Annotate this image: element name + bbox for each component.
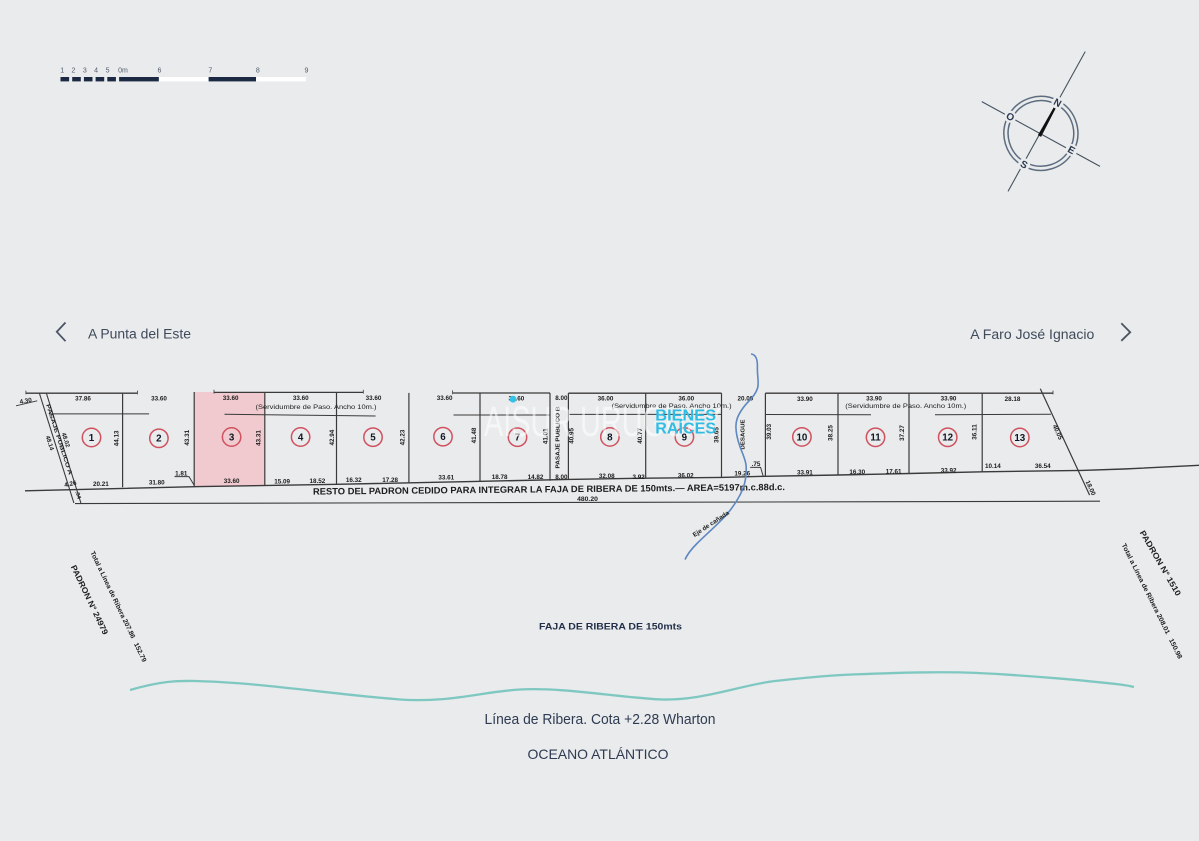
svg-text:32.08: 32.08: [599, 473, 615, 480]
svg-text:9: 9: [304, 68, 308, 75]
svg-text:DESAGUE: DESAGUE: [741, 419, 747, 449]
svg-text:41.48: 41.48: [471, 427, 478, 443]
svg-text:33.92: 33.92: [941, 468, 957, 475]
svg-text:11: 11: [870, 433, 881, 444]
svg-text:7: 7: [208, 68, 212, 75]
svg-text:6: 6: [440, 432, 446, 443]
svg-text:1: 1: [60, 68, 64, 75]
svg-text:0m: 0m: [118, 68, 128, 75]
svg-text:8: 8: [256, 68, 260, 75]
svg-text:2: 2: [72, 68, 76, 75]
svg-text:5: 5: [370, 433, 376, 444]
svg-text:2: 2: [156, 434, 162, 445]
svg-text:33.61: 33.61: [438, 474, 454, 481]
svg-text:4: 4: [298, 432, 304, 443]
svg-text:18.52: 18.52: [310, 478, 326, 485]
svg-text:36.02: 36.02: [678, 472, 694, 479]
svg-text:33.60: 33.60: [151, 395, 167, 402]
svg-text:1: 1: [89, 433, 95, 444]
svg-text:33.60: 33.60: [223, 395, 239, 402]
svg-text:19.26: 19.26: [734, 471, 750, 478]
svg-text:39.03: 39.03: [766, 423, 773, 439]
svg-text:.75: .75: [752, 461, 761, 468]
svg-text:16.30: 16.30: [849, 469, 865, 476]
svg-text:14.82: 14.82: [528, 474, 544, 481]
svg-text:33.90: 33.90: [866, 396, 882, 403]
svg-text:33.60: 33.60: [437, 395, 453, 402]
svg-text:36.11: 36.11: [972, 424, 979, 440]
svg-text:RAÍCES: RAÍCES: [655, 420, 716, 437]
svg-text:6: 6: [158, 68, 162, 75]
svg-text:(Servidumbre de Paso. Ancho 10: (Servidumbre de Paso. Ancho 10m.): [845, 404, 966, 410]
svg-text:3: 3: [229, 432, 235, 443]
svg-text:43.31: 43.31: [256, 430, 263, 446]
svg-text:42.94: 42.94: [329, 429, 336, 445]
svg-text:37.27: 37.27: [899, 425, 906, 441]
svg-text:FAJA DE RIBERA DE 150mts: FAJA DE RIBERA DE 150mts: [539, 622, 682, 633]
svg-text:10.14: 10.14: [985, 463, 1001, 470]
svg-text:20.21: 20.21: [93, 481, 109, 488]
svg-text:16.32: 16.32: [346, 477, 362, 484]
svg-text:36.54: 36.54: [1035, 463, 1051, 470]
svg-text:33.90: 33.90: [797, 396, 813, 403]
svg-text:3.92: 3.92: [632, 474, 645, 481]
svg-text:38.25: 38.25: [828, 425, 835, 441]
svg-text:28.18: 28.18: [1005, 396, 1021, 403]
svg-text:OCEANO ATLÁNTICO: OCEANO ATLÁNTICO: [528, 747, 669, 762]
svg-text:12: 12: [942, 433, 953, 444]
svg-text:37.86: 37.86: [75, 395, 91, 402]
svg-text:33.60: 33.60: [293, 395, 309, 402]
svg-text:10: 10: [796, 432, 807, 443]
svg-text:8.00: 8.00: [555, 474, 568, 481]
svg-text:5: 5: [106, 68, 110, 75]
svg-text:44.13: 44.13: [113, 430, 120, 446]
svg-text:(Servidumbre de Paso. Ancho 10: (Servidumbre de Paso. Ancho 10m.): [256, 405, 377, 411]
svg-text:31.80: 31.80: [149, 479, 165, 486]
svg-text:17.61: 17.61: [886, 469, 902, 476]
svg-text:18.78: 18.78: [492, 474, 508, 481]
svg-text:43.31: 43.31: [184, 429, 191, 445]
svg-text:17.28: 17.28: [382, 477, 398, 484]
svg-text:42.23: 42.23: [400, 429, 407, 445]
svg-text:33.91: 33.91: [797, 470, 813, 477]
svg-text:33.90: 33.90: [941, 396, 957, 403]
svg-text:4: 4: [94, 68, 98, 75]
svg-text:Línea de Ribera. Cota +2.28 Wh: Línea de Ribera. Cota +2.28 Wharton: [485, 712, 716, 728]
svg-text:15.09: 15.09: [274, 479, 290, 486]
svg-text:A Faro José Ignacio: A Faro José Ignacio: [970, 327, 1094, 343]
svg-text:480.20: 480.20: [577, 496, 598, 503]
svg-text:33.60: 33.60: [366, 395, 382, 402]
svg-text:A Punta del Este: A Punta del Este: [88, 327, 191, 343]
svg-text:13: 13: [1014, 433, 1025, 444]
svg-text:1.81: 1.81: [175, 470, 188, 477]
svg-text:3: 3: [83, 68, 87, 75]
svg-text:33.60: 33.60: [224, 478, 240, 485]
